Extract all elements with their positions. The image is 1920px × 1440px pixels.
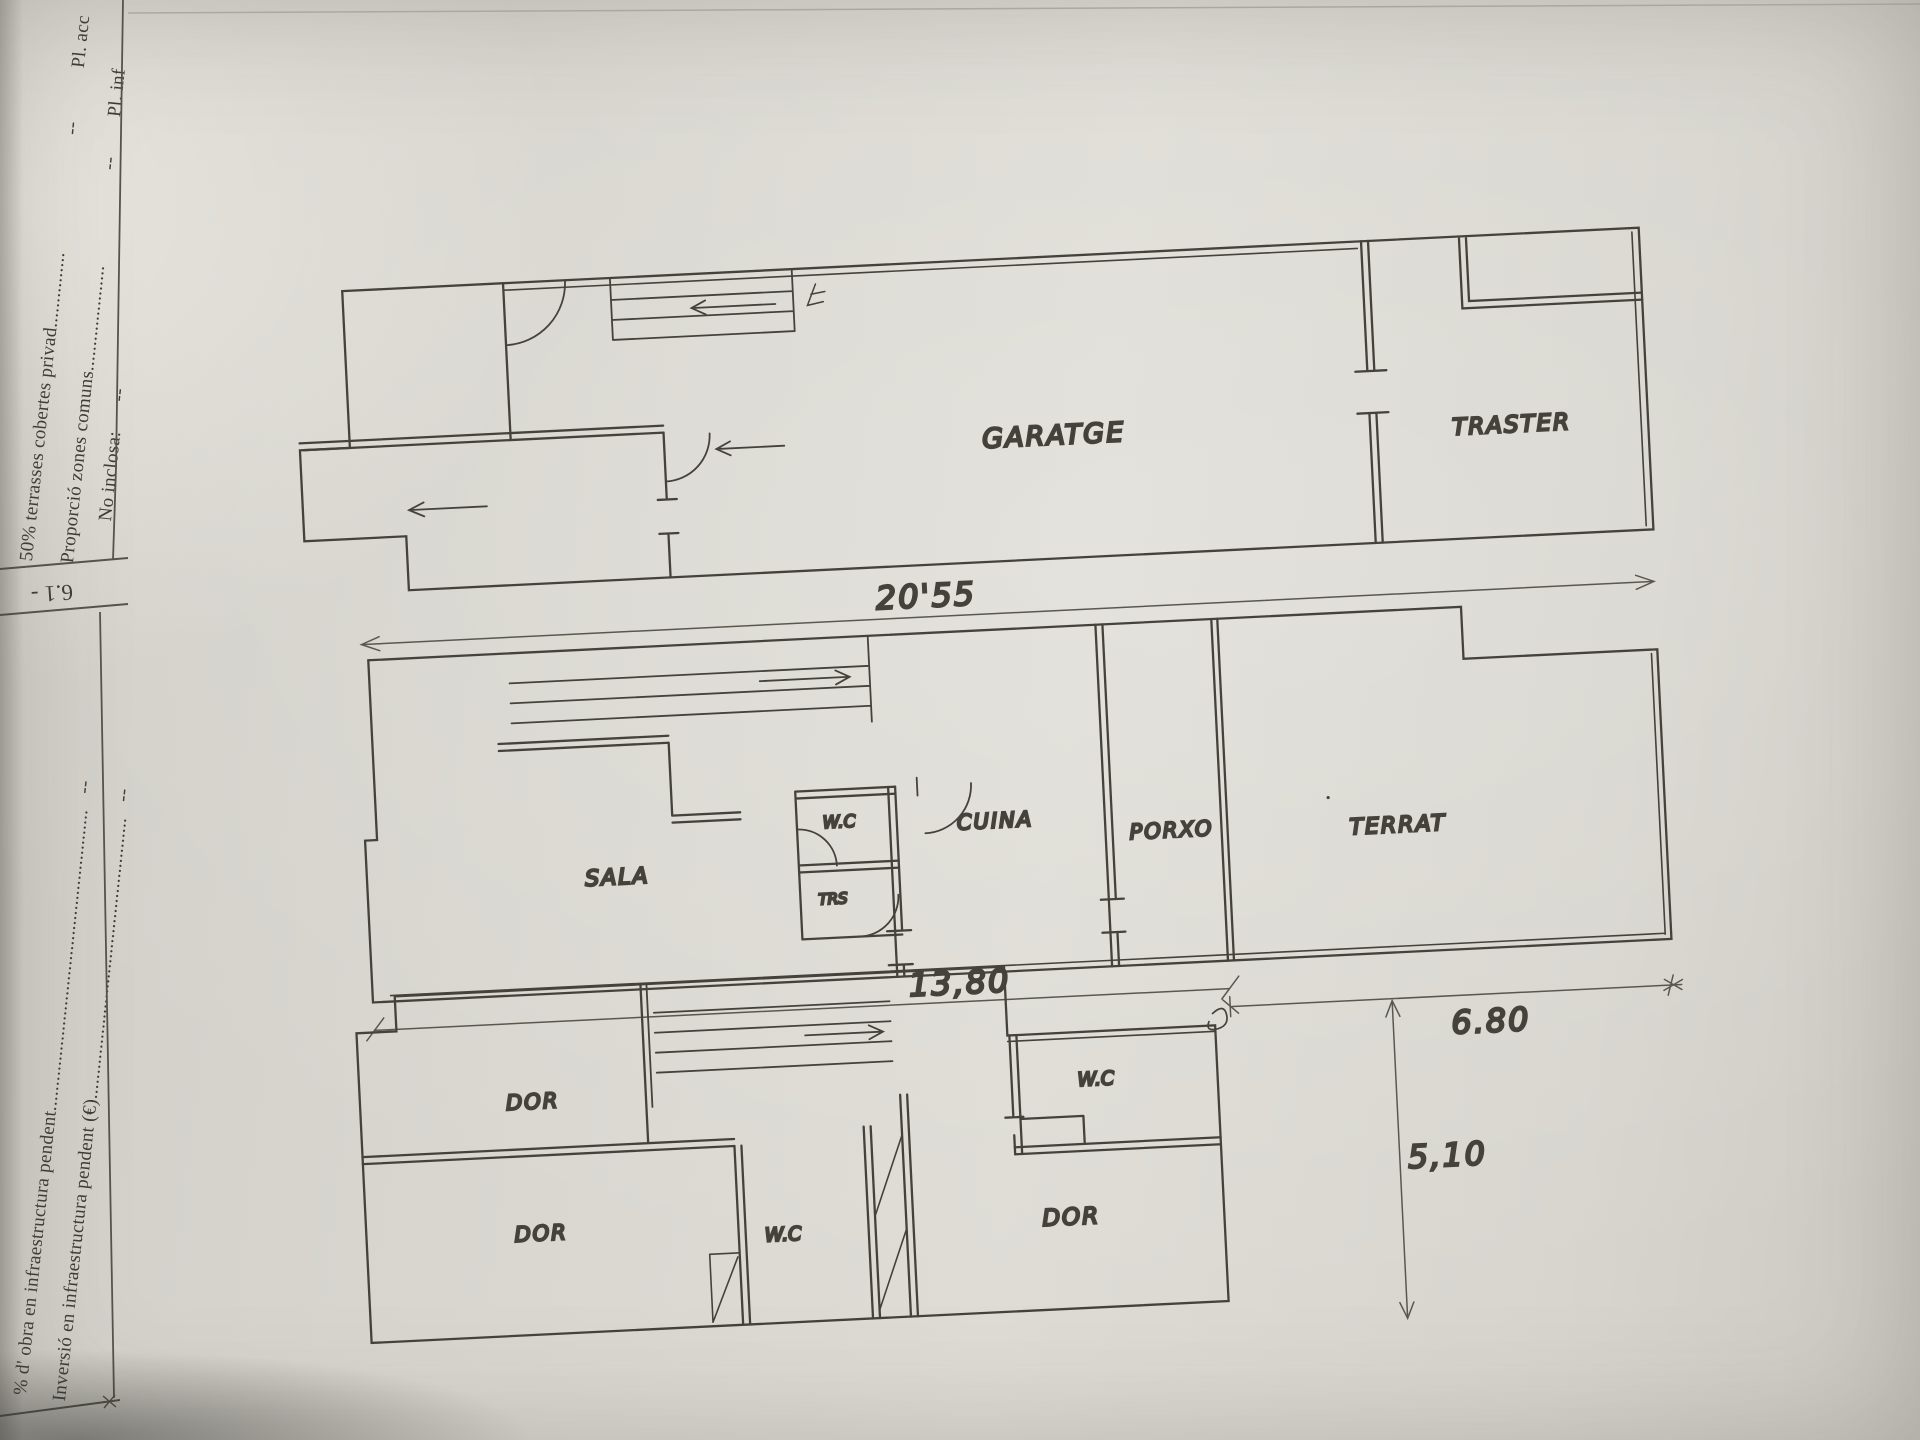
stair-direction-arrow	[805, 1025, 884, 1043]
pencil-dot	[1326, 796, 1329, 799]
floorplan-sketch: GARATGE TRASTER 20'55	[0, 0, 1920, 1440]
dimension-label-680: 6.80	[1450, 1000, 1531, 1042]
room-label-terrat: TERRAT	[1349, 811, 1447, 841]
room-label-wc-bottom: W.C	[764, 1223, 802, 1247]
room-label-wc-top: W.C	[1077, 1067, 1115, 1091]
top-right-closet-wall	[1459, 230, 1642, 309]
room-label-porxo: PORXO	[1129, 816, 1214, 844]
door-arc	[664, 433, 712, 481]
room-label-traster: TRASTER	[1452, 409, 1572, 441]
entrance-arrow	[409, 499, 488, 517]
room-label-sala: SALA	[585, 864, 650, 892]
room-label-dor2: DOR	[514, 1220, 568, 1247]
plan-bottom-stairs	[646, 972, 894, 1107]
room-label-cuina: CUINA	[956, 807, 1033, 835]
dimension-label-2055: 20'55	[875, 575, 977, 618]
garage-traster-wall	[1349, 240, 1395, 543]
room-label-trs: TRS	[818, 889, 848, 908]
stair-direction-arrow	[759, 670, 850, 688]
wc-top-left-wall	[1001, 1035, 1025, 1155]
form-border-lines	[0, 0, 1920, 1416]
direction-arrow	[716, 439, 785, 456]
plan-middle-walls	[356, 597, 1671, 1002]
photographed-floorplan-page: 50% terrasses cobertes privad...........…	[0, 0, 1920, 1440]
plan-middle-doors	[795, 775, 978, 939]
room-label-garatge: GARATGE	[981, 417, 1125, 455]
door-arc	[797, 828, 837, 868]
plan-bottom-walls	[355, 956, 1229, 1343]
pencil-squiggle	[806, 284, 825, 306]
room-label-dor1: DOR	[505, 1088, 559, 1115]
cuina-porxo-wall	[1087, 624, 1127, 967]
plan-top-walls	[292, 228, 1653, 595]
room-label-wc-middle: W.C	[822, 812, 856, 834]
wc-core-walls	[795, 787, 902, 940]
door-leaf	[710, 1253, 743, 1322]
wc-top-fixture	[1013, 1109, 1220, 1154]
porxo-terrat-wall	[1211, 619, 1234, 961]
room-label-dor3: DOR	[1042, 1203, 1101, 1232]
corridor-walls	[862, 1094, 918, 1318]
plan-top-doors-arrows	[398, 268, 835, 518]
sketch-rotated-group: GARATGE TRASTER 20'55	[292, 227, 1698, 1370]
door-swing-diagonals	[871, 1135, 910, 1310]
dimension-label-510: 5,10	[1407, 1134, 1488, 1176]
